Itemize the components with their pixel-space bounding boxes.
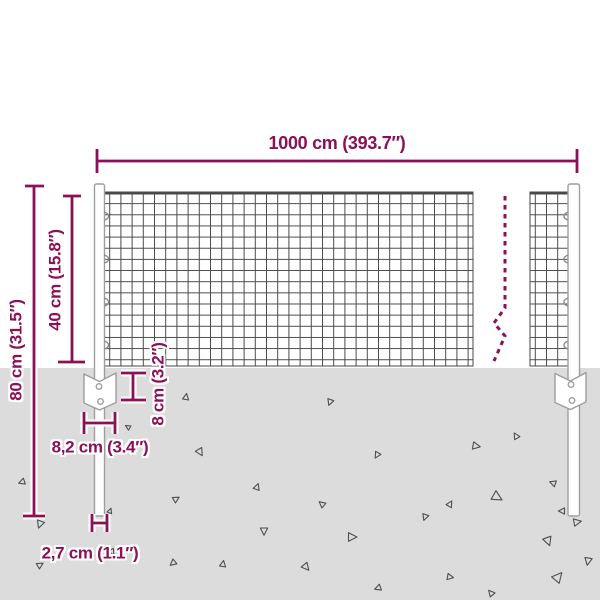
plate-depth-label: 8 cm (3.2″) [150, 342, 167, 425]
post-height-label: 80 cm (31.5″) [8, 299, 25, 401]
break-line [494, 196, 505, 361]
diagram-canvas [0, 0, 600, 600]
screw-hole [568, 382, 574, 388]
screw-hole [569, 398, 575, 404]
screw-hole [96, 384, 102, 390]
total-width-label: 1000 cm (393.7″) [269, 134, 406, 152]
plate-width-label: 8,2 cm (3.4″) [52, 439, 149, 456]
mesh-height-label: 40 cm (15.8″) [47, 229, 64, 331]
mesh-panel-left [98, 192, 473, 366]
fence-dimension-diagram: 1000 cm (393.7″) 80 cm (31.5″) 40 cm (15… [0, 0, 600, 600]
post-diameter-label: 2,7 cm (1.1″) [42, 545, 139, 562]
screw-hole [98, 399, 104, 405]
